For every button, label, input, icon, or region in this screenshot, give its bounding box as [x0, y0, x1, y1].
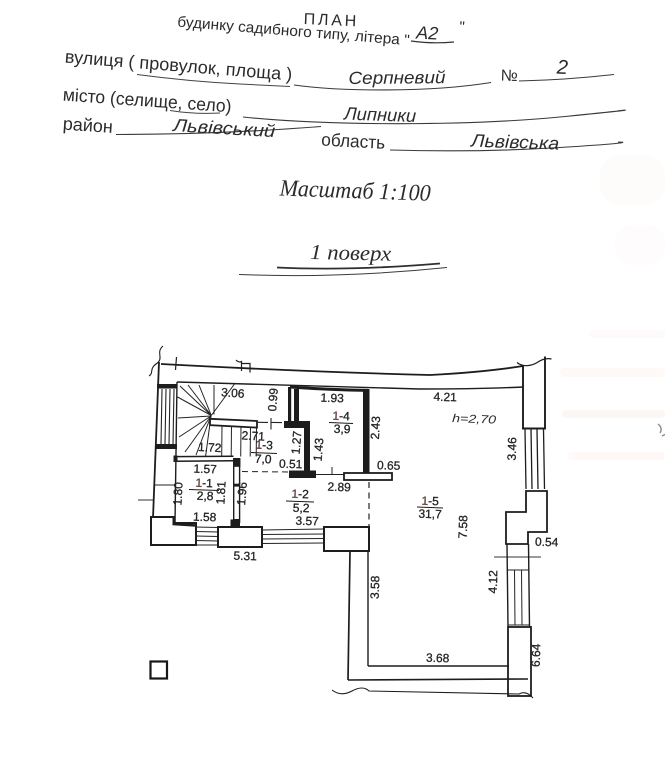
- svg-text:4.12: 4.12: [486, 570, 501, 594]
- svg-text:1.57: 1.57: [193, 462, 217, 477]
- svg-text:3.46: 3.46: [505, 437, 520, 461]
- svg-text:1.27: 1.27: [289, 430, 305, 455]
- svg-text:3.06: 3.06: [221, 385, 246, 401]
- svg-text:1.80: 1.80: [170, 481, 185, 505]
- svg-text:1.58: 1.58: [193, 510, 217, 525]
- svg-text:0.51: 0.51: [279, 457, 303, 472]
- svg-text:1.81: 1.81: [213, 480, 228, 504]
- svg-text:0.65: 0.65: [377, 458, 401, 473]
- svg-text:3.58: 3.58: [368, 575, 383, 599]
- svg-text:2.89: 2.89: [327, 480, 351, 495]
- svg-text:Серпневий: Серпневий: [348, 67, 445, 88]
- svg-text:2: 2: [555, 56, 568, 79]
- svg-text:0.54: 0.54: [535, 535, 559, 550]
- svg-text:3.57: 3.57: [295, 514, 319, 529]
- svg-text:31,7: 31,7: [418, 507, 442, 522]
- svg-text:2,8: 2,8: [197, 489, 214, 504]
- svg-text:0.99: 0.99: [265, 387, 281, 412]
- svg-text:7.58: 7.58: [456, 515, 471, 539]
- svg-text:1-2: 1-2: [291, 487, 309, 502]
- svg-text:h=2,70: h=2,70: [452, 413, 497, 427]
- svg-text:Львівська: Львівська: [470, 130, 560, 153]
- svg-text:3.68: 3.68: [426, 651, 450, 666]
- svg-text:Липники: Липники: [343, 103, 417, 126]
- svg-text:2.43: 2.43: [368, 415, 383, 439]
- svg-text:7,0: 7,0: [255, 452, 273, 467]
- svg-text:4.21: 4.21: [433, 390, 457, 405]
- svg-text:А2: А2: [415, 22, 439, 43]
- svg-text:1 поверх: 1 поверх: [310, 240, 392, 266]
- svg-text:3,9: 3,9: [334, 422, 351, 437]
- svg-text:Масштаб 1:100: Масштаб 1:100: [278, 175, 431, 206]
- svg-text:6.64: 6.64: [529, 643, 544, 667]
- svg-text:5.31: 5.31: [233, 549, 257, 564]
- svg-text:1.43: 1.43: [311, 437, 327, 462]
- svg-text:№: №: [500, 68, 518, 86]
- svg-text:1-3: 1-3: [255, 438, 273, 453]
- svg-text:район: район: [62, 114, 113, 137]
- svg-text:1.96: 1.96: [234, 481, 250, 506]
- svg-text:1.72: 1.72: [198, 440, 222, 455]
- svg-text:1.93: 1.93: [320, 391, 344, 406]
- svg-text:область: область: [321, 130, 386, 153]
